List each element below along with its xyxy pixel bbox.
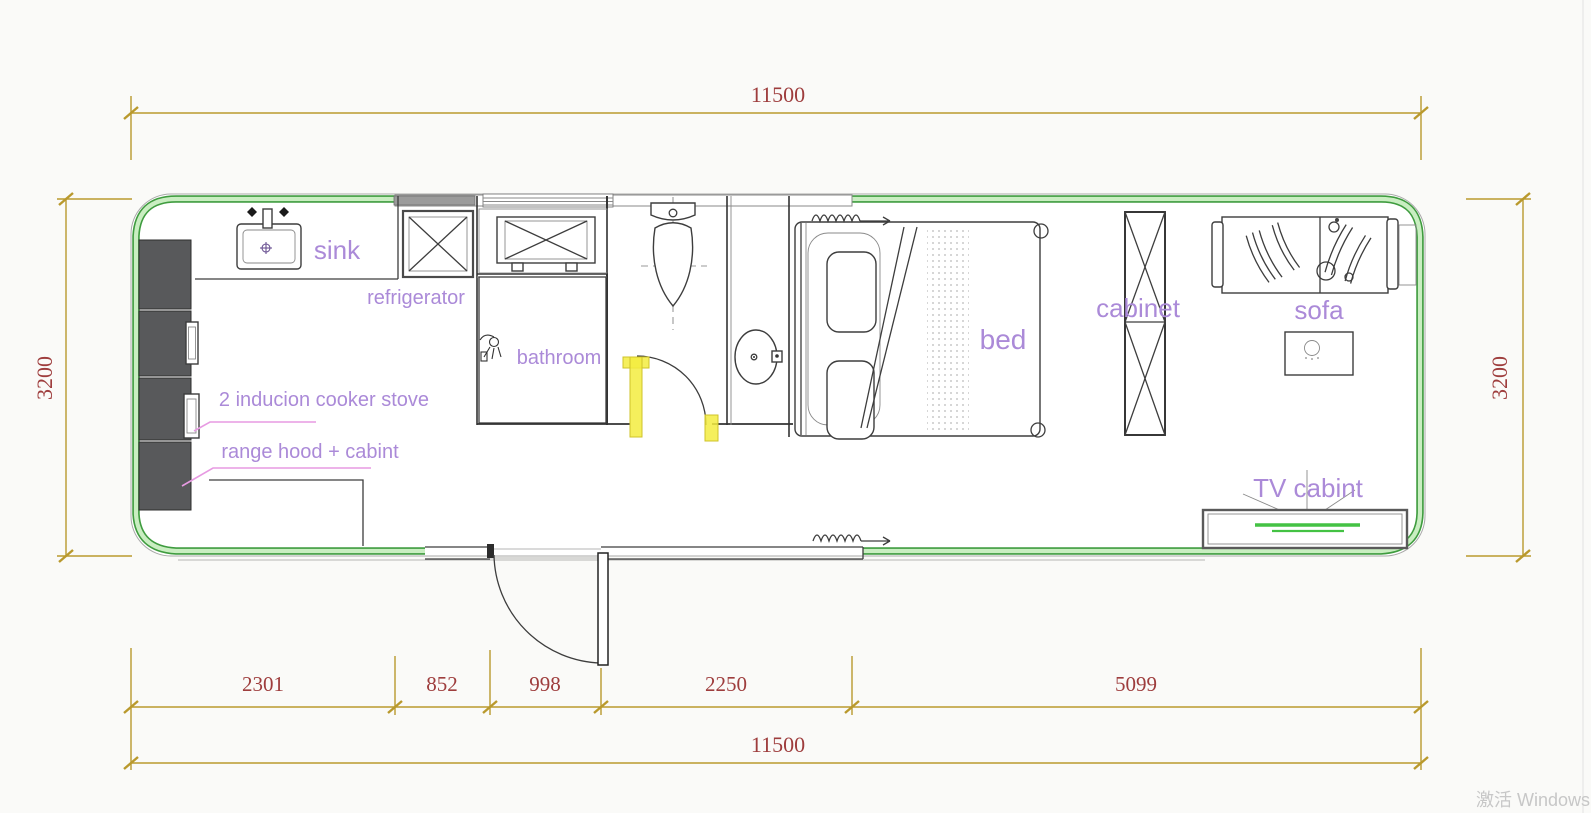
kitchen-counter-dark-blocks <box>139 240 199 510</box>
pillow <box>827 252 876 332</box>
label-sink: sink <box>314 235 361 265</box>
washing-machine <box>479 209 607 273</box>
label-cabinet: cabinet <box>1096 293 1181 323</box>
oven-unit <box>184 394 199 438</box>
door-jamb <box>487 544 494 558</box>
dimension-bottom-total: 11500 <box>124 732 1428 769</box>
dim-top-total: 11500 <box>751 82 805 107</box>
dim-right-height: 3200 <box>1487 356 1512 400</box>
refrigerator-unit <box>403 211 473 277</box>
dimension-right: 3200 <box>1466 193 1531 562</box>
dimension-left: 3200 <box>32 193 132 562</box>
label-induction-cooker: 2 inducion cooker stove <box>219 389 429 411</box>
dim-left-height: 3200 <box>32 356 57 400</box>
floorplan-page: 11500 3200 3200 2301 852 998 2250 50 <box>0 0 1591 813</box>
dim-segment-2301: 2301 <box>242 672 284 696</box>
label-sofa: sofa <box>1294 295 1344 325</box>
entry-door-swing-arc <box>494 555 601 663</box>
sofa-unit <box>1212 217 1416 293</box>
label-bed: bed <box>980 324 1027 355</box>
entry-door <box>487 544 608 665</box>
dim-segment-852: 852 <box>426 672 458 696</box>
label-tv-cabinet: TV cabint <box>1253 473 1364 503</box>
faucet-icon <box>263 209 272 228</box>
label-refrigerator: refrigerator <box>367 287 465 309</box>
bed-runner <box>927 226 969 434</box>
activate-windows-watermark: 激活 Windows <box>1476 786 1590 812</box>
dim-segment-2250: 2250 <box>705 672 747 696</box>
coffee-table <box>1285 332 1353 375</box>
label-bathroom: bathroom <box>517 347 602 369</box>
wardrobe-cabinet <box>1125 212 1165 435</box>
entry-door-leaf <box>598 553 608 665</box>
label-range-hood: range hood + cabint <box>221 441 399 463</box>
dim-bottom-total: 11500 <box>751 732 805 757</box>
dim-segment-998: 998 <box>529 672 561 696</box>
floorplan-canvas: 11500 3200 3200 2301 852 998 2250 50 <box>0 0 1591 813</box>
dim-segment-5099: 5099 <box>1115 672 1157 696</box>
dimension-top: 11500 <box>124 82 1428 160</box>
induction-cooker-unit <box>186 322 198 364</box>
